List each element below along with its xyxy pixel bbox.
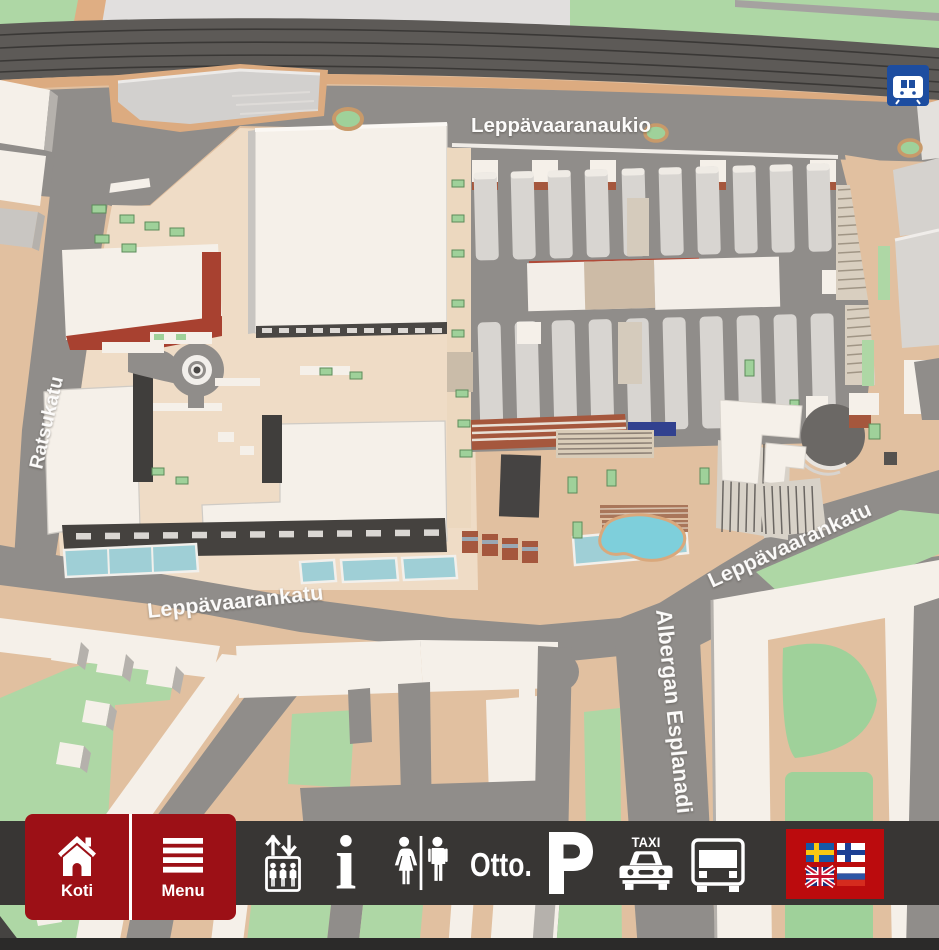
- svg-text:Leppävaaranaukio: Leppävaaranaukio: [471, 114, 651, 137]
- svg-text:TAXI: TAXI: [632, 835, 661, 850]
